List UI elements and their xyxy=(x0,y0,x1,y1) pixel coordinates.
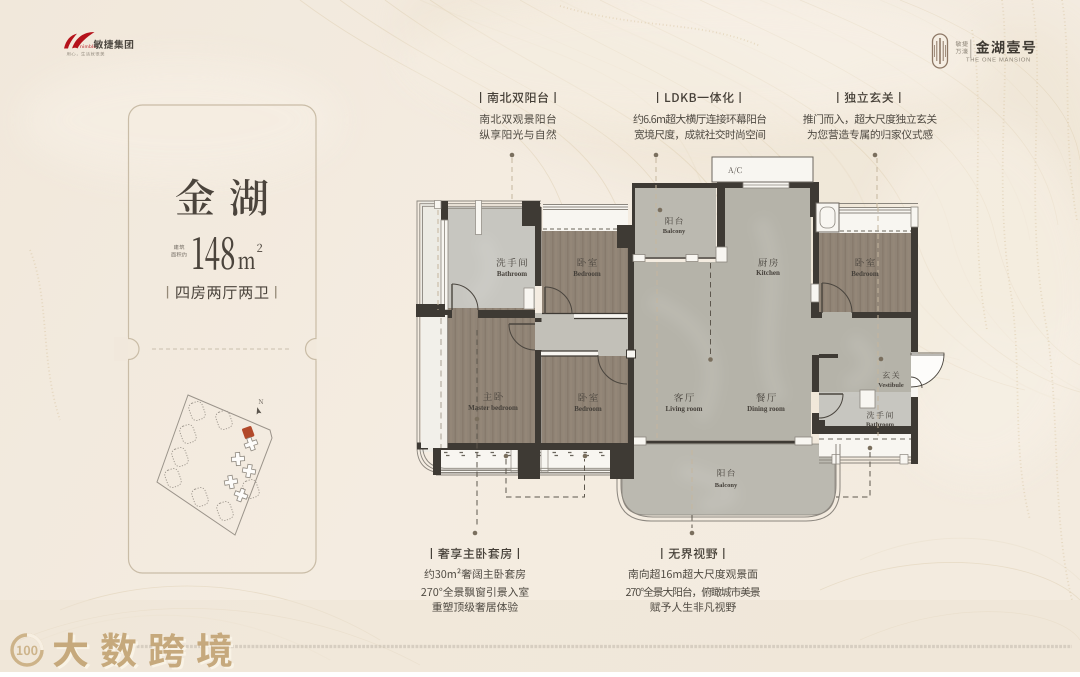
svg-text:Bedroom: Bedroom xyxy=(574,405,602,413)
svg-text:Master bedroom: Master bedroom xyxy=(468,404,518,412)
svg-text:Bedroom: Bedroom xyxy=(573,270,601,278)
svg-text:Dining room: Dining room xyxy=(747,405,785,413)
svg-text:Bedroom: Bedroom xyxy=(851,270,879,278)
svg-text:Living room: Living room xyxy=(665,405,702,413)
svg-text:Bathroom: Bathroom xyxy=(866,422,895,429)
svg-text:Kitchen: Kitchen xyxy=(756,269,780,277)
svg-text:Balcony: Balcony xyxy=(715,482,738,489)
svg-text:Bathroom: Bathroom xyxy=(497,270,527,278)
svg-text:THE ONE MANSION: THE ONE MANSION xyxy=(966,58,1031,64)
svg-text:Vestibule: Vestibule xyxy=(878,382,904,389)
svg-text:Balcony: Balcony xyxy=(663,228,686,235)
